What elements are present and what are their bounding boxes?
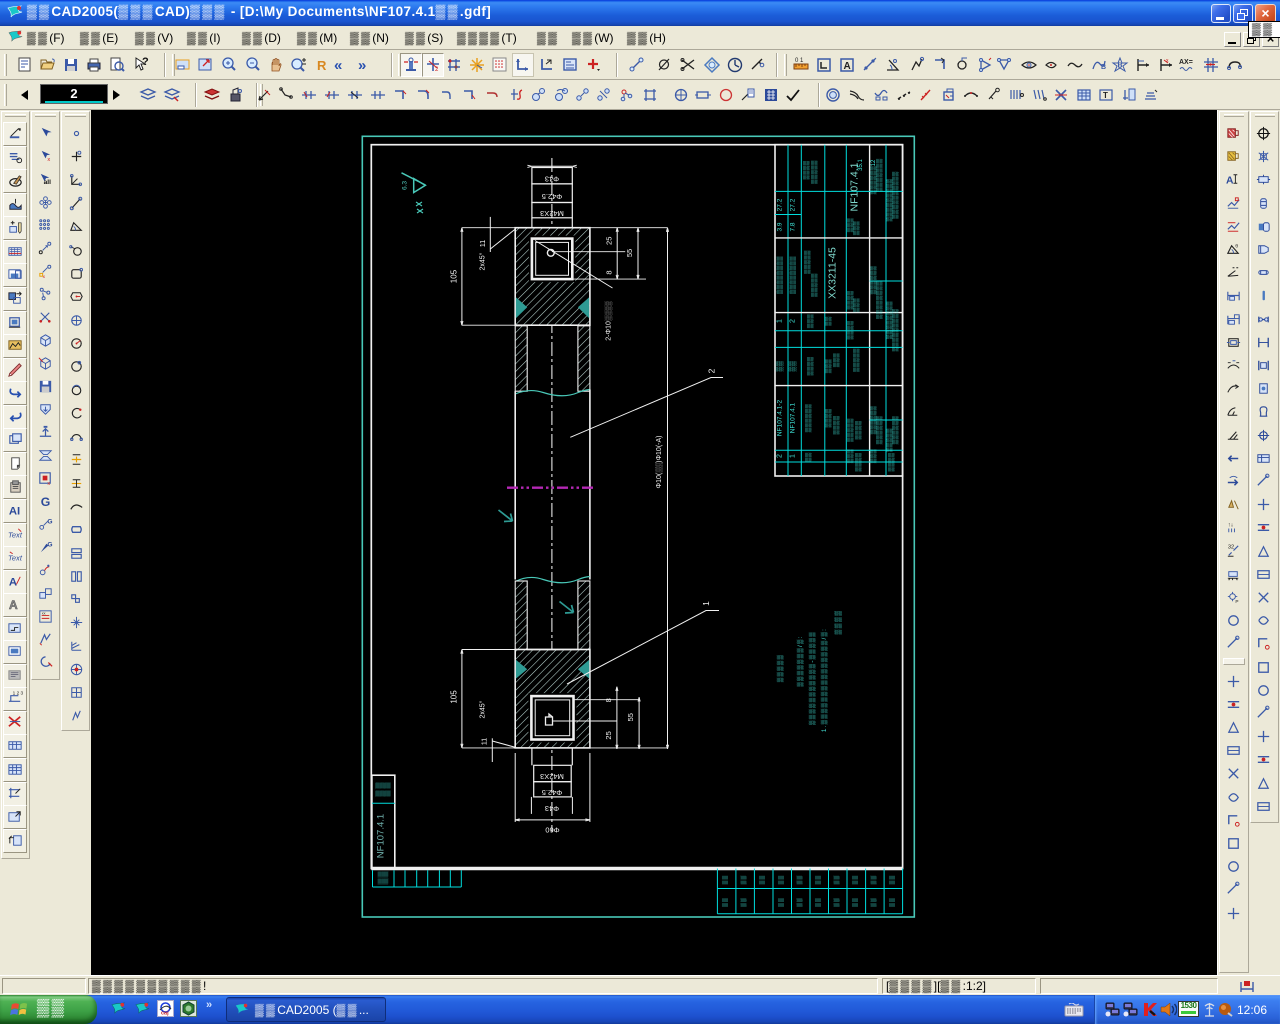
svg-text:Φ60: Φ60 bbox=[545, 826, 559, 835]
svg-text:105: 105 bbox=[449, 690, 458, 704]
svg-text:▒▒: ▒▒ bbox=[776, 361, 784, 372]
svg-text:▒▒: ▒▒ bbox=[796, 897, 803, 907]
svg-text:▒▒▒▒▒▒: ▒▒▒▒▒▒ bbox=[870, 266, 877, 295]
svg-text:▒▒▒▒: ▒▒▒▒ bbox=[847, 320, 854, 339]
svg-text:▒▒: ▒▒ bbox=[759, 875, 766, 885]
svg-text:»: » bbox=[358, 57, 366, 74]
svg-text:▒▒▒▒▒▒: ▒▒▒▒▒▒ bbox=[805, 404, 812, 433]
svg-text:B: B bbox=[1101, 64, 1106, 71]
svg-text:25: 25 bbox=[604, 731, 613, 739]
svg-text:G: G bbox=[40, 495, 50, 509]
svg-text:▒▒: ▒▒ bbox=[870, 875, 877, 885]
svg-text:▒▒▒▒▒▒▒/▒:: ▒▒▒▒▒▒▒/▒: bbox=[796, 635, 804, 686]
svg-text:▒▒: ▒▒ bbox=[888, 875, 895, 885]
svg-text:▒▒: ▒▒ bbox=[851, 897, 858, 907]
svg-text:0 1: 0 1 bbox=[795, 58, 804, 64]
svg-text:NF107.4.1: NF107.4.1 bbox=[790, 402, 797, 433]
svg-text:▒▒: ▒▒ bbox=[722, 875, 729, 885]
svg-text:Φ10(░░)Φ10(-A): Φ10(░░)Φ10(-A) bbox=[655, 436, 663, 489]
svg-text:▒▒▒▒▒: ▒▒▒▒▒ bbox=[776, 654, 784, 682]
svg-text:?: ? bbox=[142, 56, 149, 68]
svg-text:▒▒: ▒▒ bbox=[722, 897, 729, 907]
svg-text:xx: xx bbox=[41, 612, 45, 616]
svg-text:▒▒▒▒▒: ▒▒▒▒▒ bbox=[853, 348, 860, 372]
svg-text:11: 11 bbox=[480, 240, 487, 247]
svg-text:B: B bbox=[1118, 62, 1123, 69]
svg-text:x: x bbox=[42, 275, 45, 280]
svg-text:M42X3: M42X3 bbox=[540, 209, 564, 218]
svg-text:G: G bbox=[47, 542, 52, 549]
svg-text:▒▒▒: ▒▒▒ bbox=[825, 359, 832, 374]
svg-text:T: T bbox=[1103, 91, 1108, 100]
svg-text:▒▒▒: ▒▒▒ bbox=[853, 298, 860, 313]
svg-text:x: x bbox=[47, 157, 50, 163]
svg-text:7.8: 7.8 bbox=[790, 222, 797, 231]
svg-text:1: 1 bbox=[790, 454, 797, 458]
svg-text:▒▒: ▒▒ bbox=[833, 875, 840, 885]
svg-text:2x45°: 2x45° bbox=[479, 252, 487, 270]
svg-text:27.2: 27.2 bbox=[777, 198, 784, 211]
svg-text:▒▒: ▒▒ bbox=[777, 897, 784, 907]
svg-text:35.1: 35.1 bbox=[858, 159, 864, 171]
svg-text:2x45°: 2x45° bbox=[479, 700, 487, 718]
svg-text:▒▒▒▒: ▒▒▒▒ bbox=[833, 415, 840, 434]
svg-text:Φ43: Φ43 bbox=[545, 804, 559, 813]
svg-text:«: « bbox=[334, 57, 342, 74]
svg-text:1 2 3: 1 2 3 bbox=[12, 691, 23, 697]
svg-text:R: R bbox=[317, 58, 327, 73]
svg-text:▒▒▒▒▒▒: ▒▒▒▒▒▒ bbox=[892, 416, 899, 445]
svg-text:55: 55 bbox=[626, 713, 635, 721]
svg-text:▒▒: ▒▒ bbox=[888, 897, 895, 907]
svg-text:XX3211-45: XX3211-45 bbox=[827, 247, 839, 299]
svg-text:▒▒▒▒▒▒▒: ▒▒▒▒▒▒▒ bbox=[876, 158, 883, 192]
svg-text:Text: Text bbox=[7, 553, 22, 562]
svg-text:▒▒▒▒▒▒: ▒▒▒▒▒▒ bbox=[876, 416, 883, 445]
svg-text:27.2: 27.2 bbox=[790, 198, 797, 211]
svg-text:NF107.4.1-2: NF107.4.1-2 bbox=[777, 400, 784, 437]
svg-text:▒▒▒▒▒▒▒▒: ▒▒▒▒▒▒▒▒ bbox=[777, 256, 784, 294]
svg-text:▒▒▒▒▒▒▒▒: ▒▒▒▒▒▒▒▒ bbox=[790, 256, 797, 294]
svg-text:▒▒: ▒▒ bbox=[814, 897, 821, 907]
svg-text:6.3: 6.3 bbox=[402, 181, 409, 190]
svg-text:2: 2 bbox=[777, 454, 784, 458]
svg-text:▒▒▒▒: ▒▒▒▒ bbox=[888, 452, 895, 471]
svg-text:▒▒▒▒▒: ▒▒▒▒▒ bbox=[847, 418, 854, 442]
svg-text:▒▒▒: ▒▒▒ bbox=[847, 218, 854, 233]
svg-text:▒▒: ▒▒ bbox=[814, 875, 821, 885]
svg-text:▒▒▒▒▒▒▒▒▒: ▒▒▒▒▒▒▒▒▒ bbox=[892, 308, 899, 351]
svg-text:▒▒▒▒▒: ▒▒▒▒▒ bbox=[811, 160, 818, 184]
svg-text:▒▒▒: ▒▒▒ bbox=[833, 353, 840, 368]
svg-text:▒▒▒▒▒: ▒▒▒▒▒ bbox=[886, 428, 893, 452]
svg-text:Φ42.5: Φ42.5 bbox=[542, 788, 563, 797]
svg-text:A: A bbox=[8, 576, 16, 588]
svg-text:▒▒▒▒▒▒▒▒▒▒: ▒▒▒▒▒▒▒▒▒▒ bbox=[892, 171, 899, 219]
svg-text:θ: θ bbox=[1235, 244, 1238, 250]
svg-text:AX=: AX= bbox=[1179, 59, 1193, 66]
svg-text:▒▒: ▒▒ bbox=[777, 875, 784, 885]
svg-text:▒▒: ▒▒ bbox=[805, 452, 812, 462]
svg-text:G: G bbox=[47, 519, 52, 526]
svg-text:A: A bbox=[8, 598, 17, 612]
svg-text:2: 2 bbox=[435, 67, 439, 73]
svg-text:3.9: 3.9 bbox=[777, 222, 784, 231]
svg-text:▒▒▒▒▒▒: ▒▒▒▒▒▒ bbox=[870, 406, 877, 435]
svg-text:▒▒▒▒▒▒▒▒: ▒▒▒▒▒▒▒▒ bbox=[876, 281, 883, 319]
svg-text:Φ42.5: Φ42.5 bbox=[542, 192, 563, 201]
svg-text:11: 11 bbox=[482, 738, 489, 745]
svg-text:55: 55 bbox=[625, 249, 634, 257]
svg-text:8: 8 bbox=[604, 698, 613, 702]
svg-text:25: 25 bbox=[604, 237, 613, 245]
svg-text:▒▒▒▒▒: ▒▒▒▒▒ bbox=[804, 250, 811, 274]
svg-text:▒▒▒: ▒▒▒ bbox=[853, 221, 860, 236]
svg-text:2-Φ10░░░░: 2-Φ10░░░░ bbox=[605, 301, 613, 340]
svg-text:▒▒: ▒▒ bbox=[870, 897, 877, 907]
svg-text:x: x bbox=[47, 481, 50, 487]
svg-text:▒▒: ▒▒ bbox=[825, 316, 832, 326]
svg-text:▒▒▒▒: ▒▒▒▒ bbox=[855, 452, 862, 471]
svg-text:all: all bbox=[43, 179, 51, 186]
svg-text:▒▒▒▒▒▒▒▒▒: ▒▒▒▒▒▒▒▒▒ bbox=[886, 178, 893, 221]
svg-text:▒▒: ▒▒ bbox=[740, 897, 747, 907]
svg-text:▒▒▒▒: ▒▒▒▒ bbox=[375, 782, 391, 789]
svg-text:▒▒▒▒▒▒▒▒▒▒▒-▒▒▒▒▒: ▒▒▒▒▒▒▒▒▒▒▒-▒▒▒▒▒ bbox=[808, 631, 816, 725]
svg-text:▒▒▒: ▒▒▒ bbox=[378, 878, 389, 885]
svg-text:AI: AI bbox=[8, 505, 19, 517]
svg-text:2: 2 bbox=[790, 319, 797, 323]
svg-text:▒▒: ▒▒ bbox=[851, 875, 858, 885]
svg-text:1: 1 bbox=[777, 319, 784, 323]
svg-text:1.▒▒▒▒▒▒▒▒▒▒▒▒▒▒▒/▒:: 1.▒▒▒▒▒▒▒▒▒▒▒▒▒▒▒/▒: bbox=[820, 628, 828, 732]
svg-text:▒▒▒: ▒▒▒ bbox=[807, 314, 814, 329]
svg-text:A: A bbox=[1225, 176, 1233, 187]
svg-text:▒▒▒: ▒▒▒ bbox=[378, 871, 389, 878]
svg-text:2: 2 bbox=[707, 368, 717, 373]
svg-text:▒▒: ▒▒ bbox=[796, 875, 803, 885]
svg-text:▒▒▒▒: ▒▒▒▒ bbox=[375, 790, 391, 797]
svg-text:▒▒▒▒: ▒▒▒▒ bbox=[803, 160, 810, 179]
svg-text:▒▒▒▒▒▒▒▒: ▒▒▒▒▒▒▒▒ bbox=[886, 301, 893, 339]
svg-text:caj: caj bbox=[161, 1011, 169, 1017]
svg-text:▒▒: ▒▒ bbox=[789, 361, 797, 372]
svg-text:▒▒▒: ▒▒▒ bbox=[847, 449, 854, 464]
svg-text:▒▒: ▒▒ bbox=[833, 897, 840, 907]
svg-text:▒▒▒▒▒: ▒▒▒▒▒ bbox=[811, 273, 818, 297]
svg-text:▒▒▒▒▒▒: ▒▒▒▒▒▒ bbox=[870, 166, 877, 195]
svg-text:32: 32 bbox=[1227, 544, 1233, 550]
svg-text:M42X3: M42X3 bbox=[540, 772, 564, 781]
svg-text:105: 105 bbox=[450, 269, 459, 283]
svg-text:P: P bbox=[1235, 599, 1238, 605]
svg-text:x: x bbox=[1166, 58, 1169, 64]
svg-text:1: 1 bbox=[701, 601, 711, 606]
svg-text:▒▒▒: ▒▒▒ bbox=[870, 449, 877, 464]
svg-text:A: A bbox=[843, 61, 850, 72]
svg-text:▒▒▒▒: ▒▒▒▒ bbox=[855, 420, 862, 439]
svg-text:8: 8 bbox=[604, 270, 613, 274]
svg-text:▒▒: ▒▒ bbox=[740, 875, 747, 885]
svg-text:↑↓: ↑↓ bbox=[1227, 523, 1233, 529]
svg-text:▒▒▒▒: ▒▒▒▒ bbox=[825, 408, 832, 427]
svg-text:▒▒▒▒: ▒▒▒▒ bbox=[807, 356, 814, 375]
svg-text:▒▒▒▒: ▒▒▒▒ bbox=[834, 610, 842, 635]
svg-text:12: 12 bbox=[871, 159, 877, 166]
svg-text:NF107.4.1: NF107.4.1 bbox=[376, 814, 387, 858]
svg-text:Φ43: Φ43 bbox=[545, 175, 559, 184]
svg-text:▒▒▒▒: ▒▒▒▒ bbox=[847, 290, 854, 309]
